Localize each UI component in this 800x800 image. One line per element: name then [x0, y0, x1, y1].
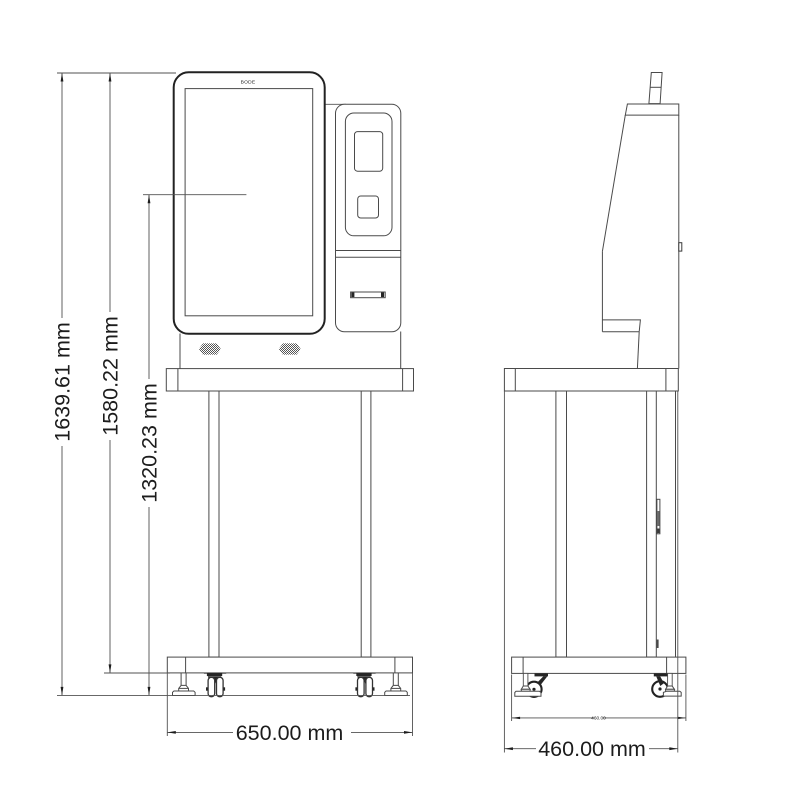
svg-text:1580.22 mm: 1580.22 mm: [99, 316, 123, 436]
svg-text:BODE: BODE: [241, 80, 256, 86]
svg-text:1320.23 mm: 1320.23 mm: [138, 383, 162, 503]
svg-text:460.00 mm: 460.00 mm: [538, 737, 646, 761]
svg-text:650.00 mm: 650.00 mm: [236, 721, 344, 745]
svg-text:460.00: 460.00: [591, 716, 606, 722]
svg-text:1639.61 mm: 1639.61 mm: [51, 322, 75, 442]
